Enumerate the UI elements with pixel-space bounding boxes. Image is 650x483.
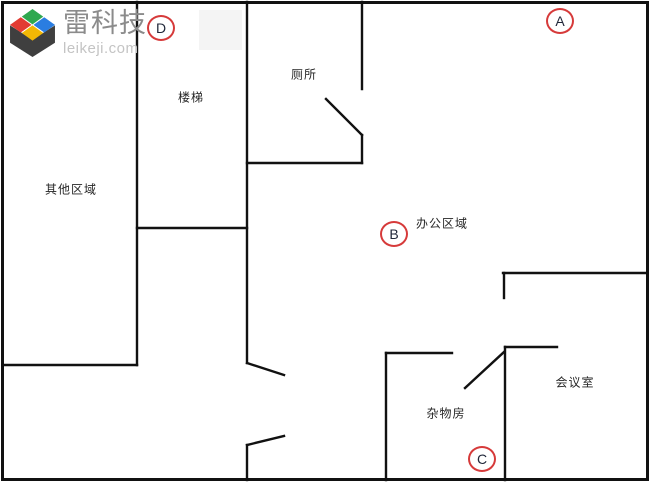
- room-label-storage-room: 杂物房: [426, 405, 465, 422]
- marker-a[interactable]: A: [546, 8, 574, 34]
- marker-b[interactable]: B: [380, 221, 408, 247]
- marker-d[interactable]: D: [147, 15, 175, 41]
- room-label-stairs: 楼梯: [178, 89, 204, 106]
- cube-logo-icon: [8, 8, 57, 57]
- marker-c[interactable]: C: [468, 446, 496, 472]
- logo-title: 雷科技: [63, 10, 147, 37]
- floorplan-walls: [0, 0, 650, 483]
- room-label-meeting-room: 会议室: [555, 374, 594, 391]
- site-logo: 雷科技 leikeji.com: [8, 8, 147, 57]
- logo-domain: leikeji.com: [63, 41, 147, 56]
- room-label-toilet: 厕所: [291, 66, 317, 83]
- floorplan-canvas: 雷科技 leikeji.com 其他区域 楼梯 厕所 办公区域 会议室 杂物房 …: [0, 0, 650, 483]
- room-label-other-area: 其他区域: [45, 181, 97, 198]
- room-label-office-area: 办公区域: [416, 215, 468, 232]
